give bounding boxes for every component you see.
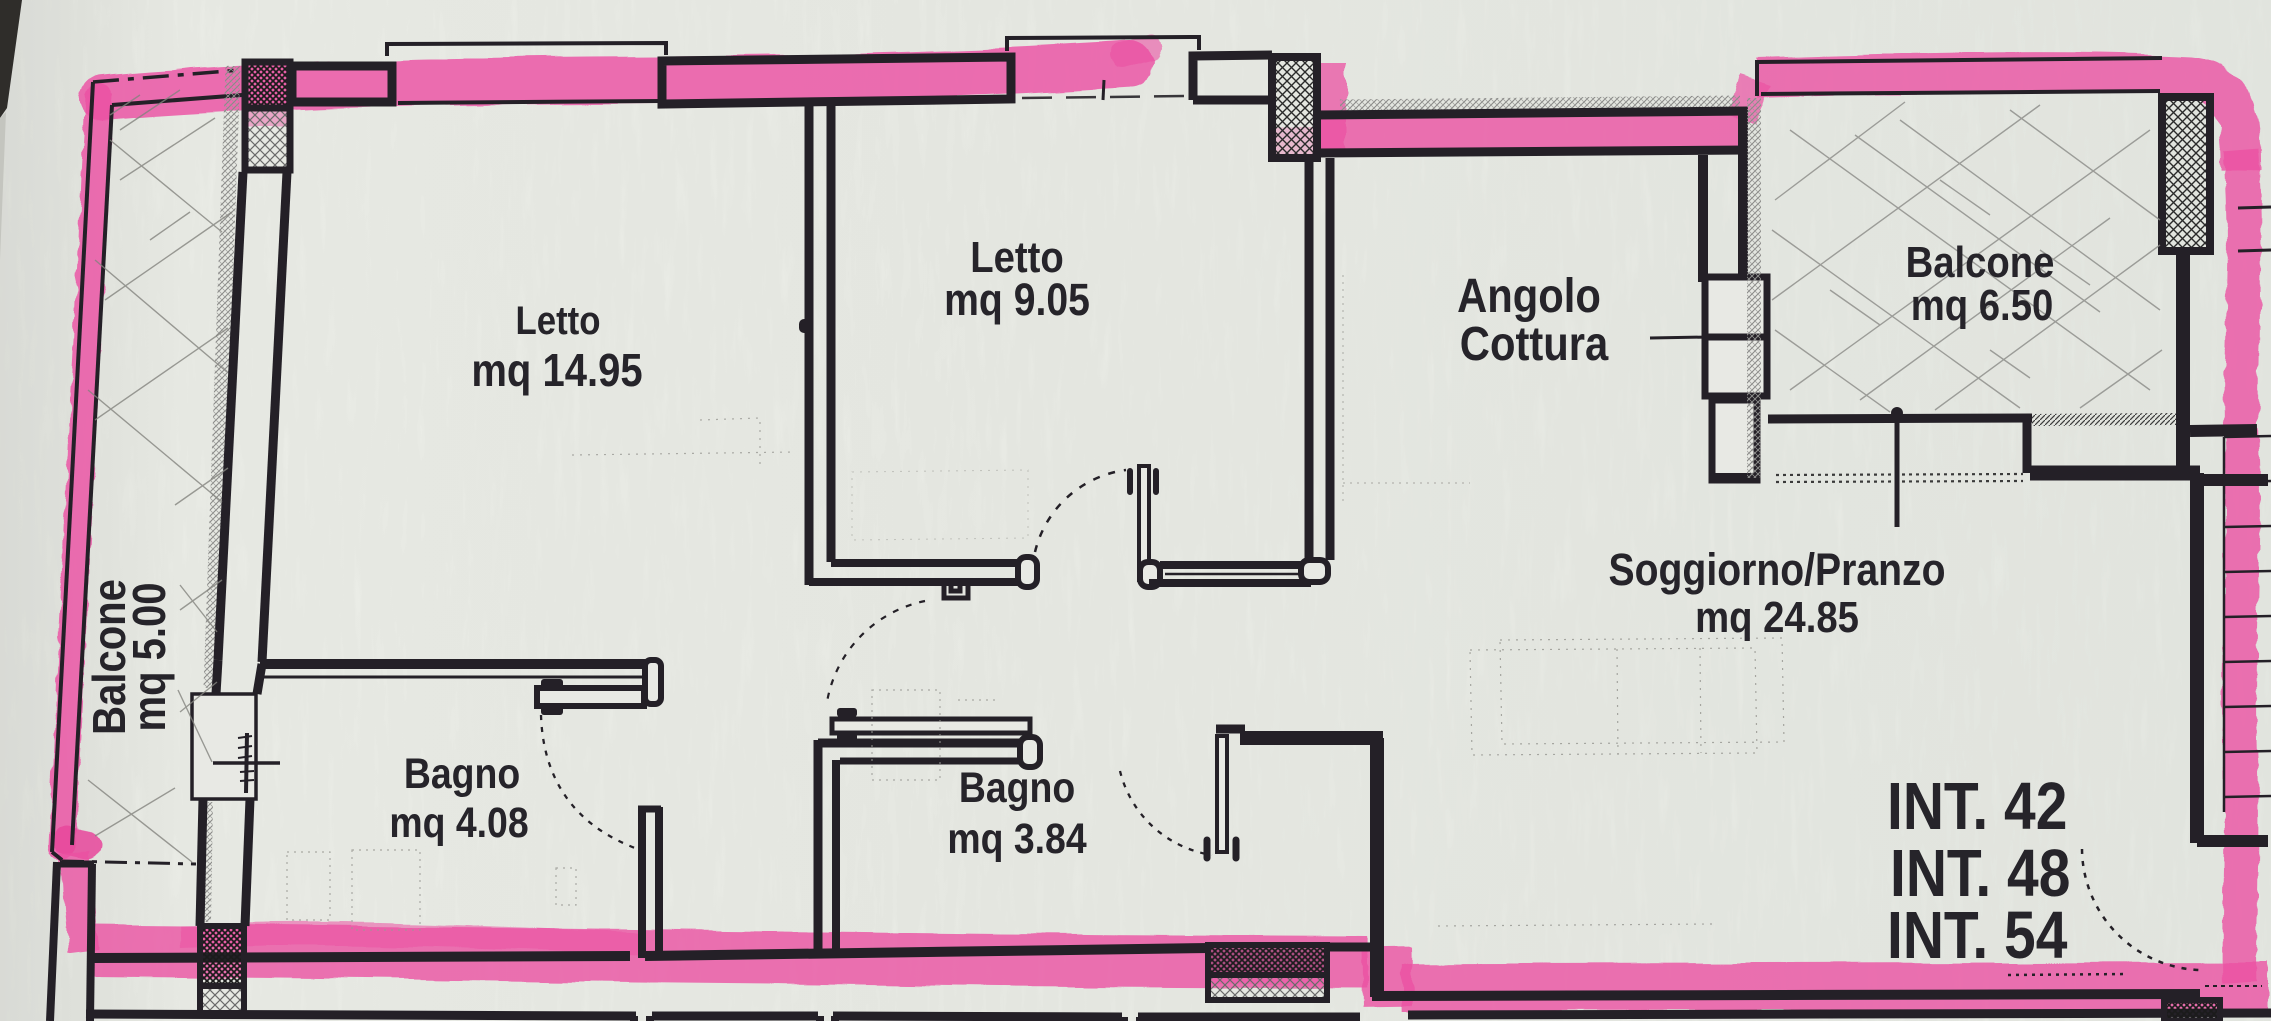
svg-text:INT. 42: INT. 42 [1887,770,2067,844]
svg-text:mq 14.95: mq 14.95 [471,345,642,396]
svg-text:mq 3.84: mq 3.84 [947,815,1087,863]
svg-text:Letto: Letto [515,298,600,343]
svg-text:mq 6.50: mq 6.50 [1911,281,2053,330]
svg-text:mq 9.05: mq 9.05 [944,274,1090,324]
svg-text:mq 24.85: mq 24.85 [1695,593,1859,642]
svg-text:mq 4.08: mq 4.08 [389,799,528,847]
svg-text:Balcone: Balcone [1906,238,2055,287]
svg-text:Angolo: Angolo [1457,268,1601,322]
svg-text:INT. 54: INT. 54 [1887,899,2068,973]
svg-text:Bagno: Bagno [959,764,1075,812]
svg-text:mq 5.00: mq 5.00 [124,582,175,731]
svg-text:Bagno: Bagno [404,750,520,798]
svg-text:Soggiorno/Pranzo: Soggiorno/Pranzo [1609,544,1946,594]
svg-text:Cottura: Cottura [1460,316,1609,370]
